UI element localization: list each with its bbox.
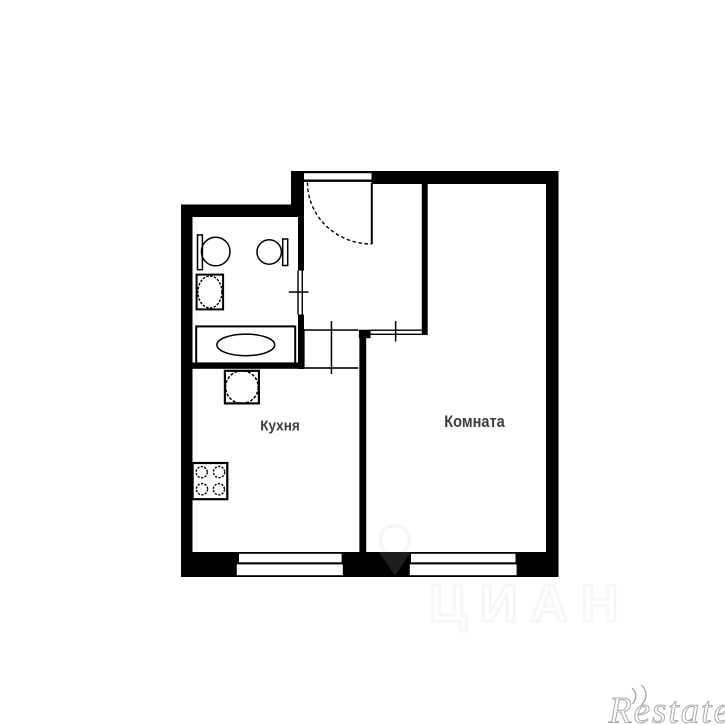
svg-text:Кухня: Кухня [260, 418, 300, 435]
svg-text:ЦИАН: ЦИАН [429, 575, 631, 633]
svg-text:Restate: Restate [608, 691, 725, 725]
svg-text:Комната: Комната [444, 412, 505, 431]
